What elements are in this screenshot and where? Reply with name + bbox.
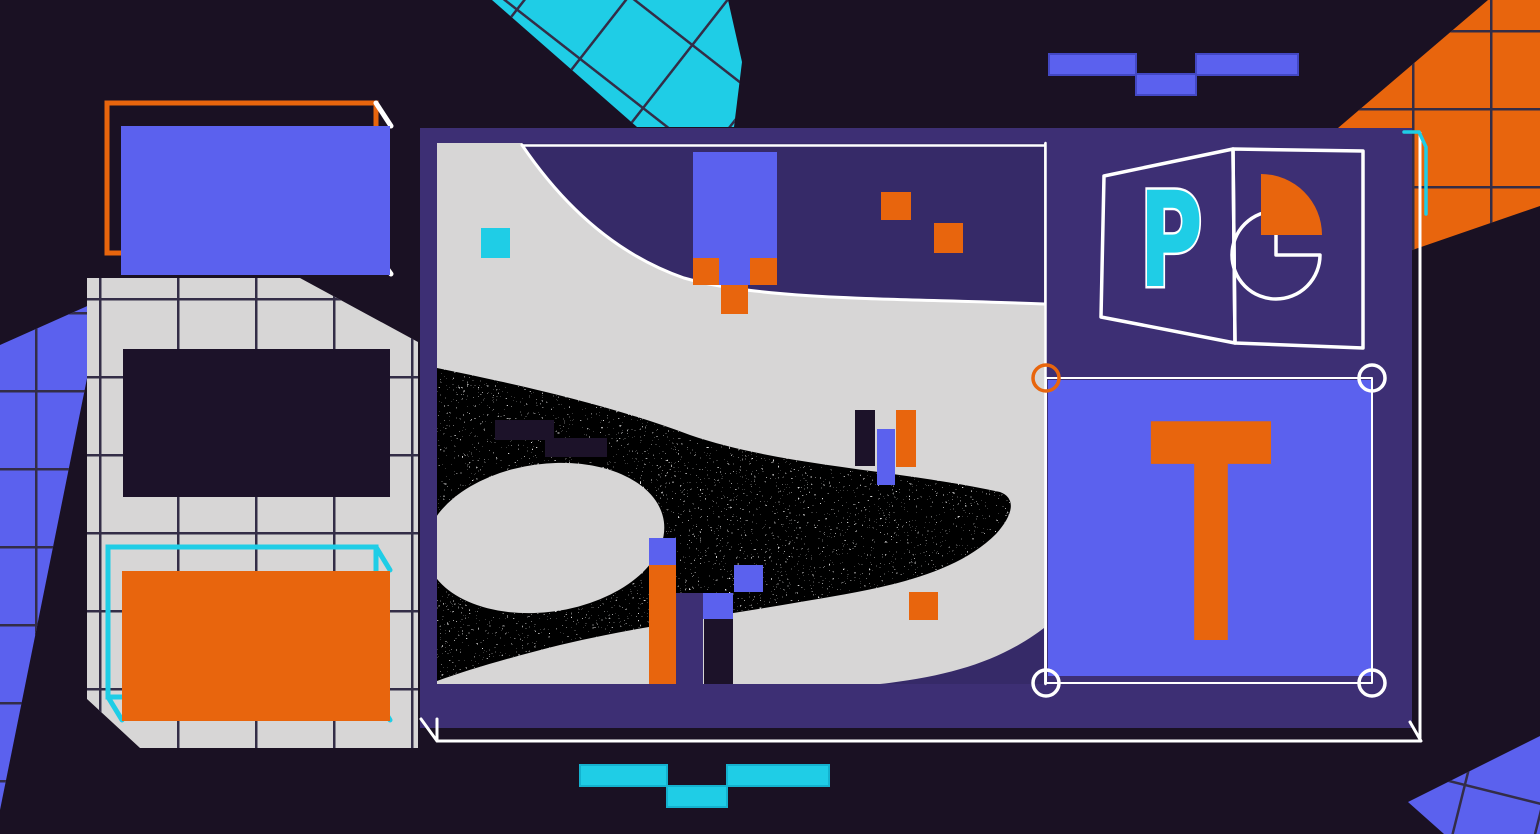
teal-block <box>481 228 510 258</box>
blue-3d-box <box>107 103 391 275</box>
text-tool-swatch[interactable]: T <box>1033 362 1385 711</box>
orange-block <box>934 223 963 253</box>
dark-rectangle-swatch <box>123 349 390 497</box>
blue-box-front-face <box>121 126 390 275</box>
orange-3d-box <box>108 547 390 721</box>
illustration-svg: P T <box>0 0 1540 834</box>
slide-art-canvas[interactable] <box>416 143 1045 684</box>
orange-block <box>909 592 938 620</box>
orange-box-front-face <box>122 571 390 721</box>
powerpoint-letter: P <box>1139 164 1203 318</box>
orange-block <box>881 192 911 220</box>
illustration-stage: P T <box>0 0 1540 834</box>
text-tool-letter: T <box>1150 362 1273 711</box>
